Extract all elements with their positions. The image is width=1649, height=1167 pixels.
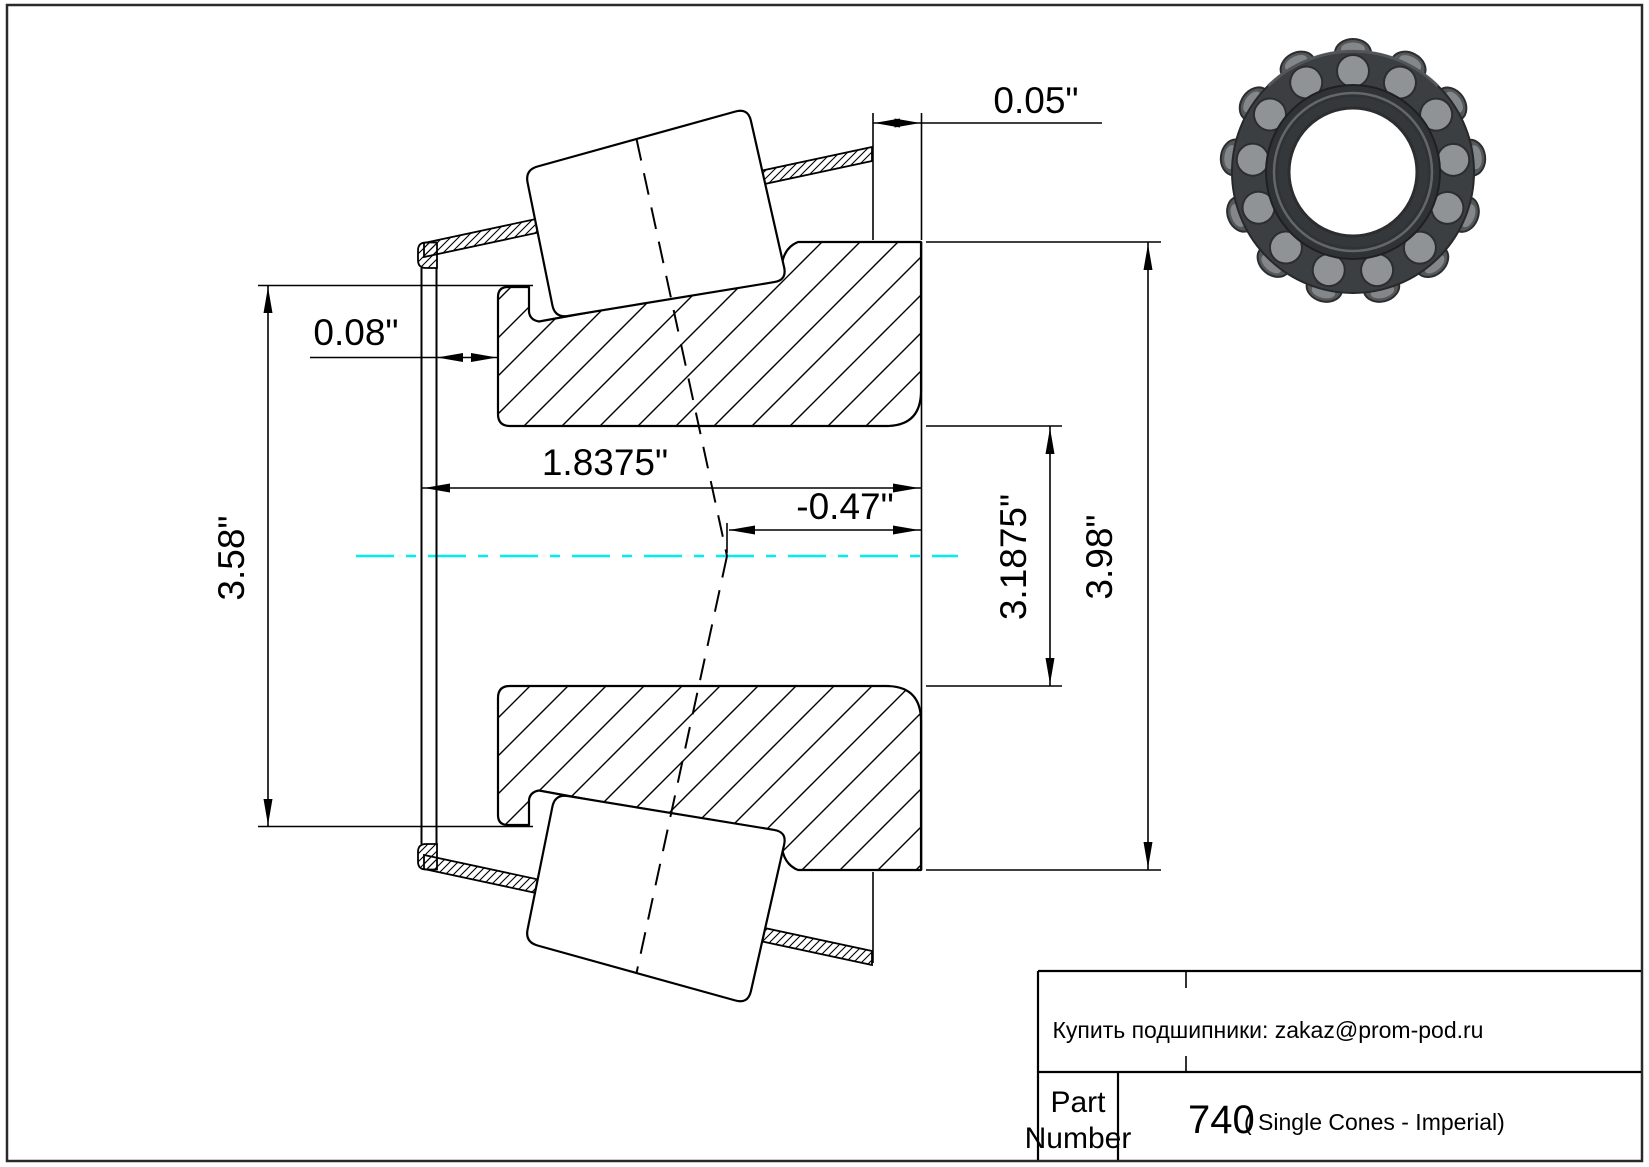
part-number-note: ( Single Cones - Imperial) bbox=[1244, 1109, 1505, 1135]
part-label-line1: Part bbox=[1050, 1086, 1106, 1119]
dim-cone-width-label: 1.8375" bbox=[542, 442, 668, 483]
part-label-line2: Number bbox=[1025, 1122, 1132, 1155]
cage-lip-lower bbox=[418, 844, 437, 870]
ext-cage-od bbox=[926, 242, 1161, 870]
dim-front-gap-label: 0.08" bbox=[313, 312, 398, 353]
dim-effective-center-label: -0.47" bbox=[796, 486, 893, 527]
dim-front-flange-label: 3.58" bbox=[211, 515, 252, 600]
drawing-sheet: 0.05" 0.08" 1.8375" -0.47" 3.1875" 3.98"… bbox=[0, 0, 1649, 1167]
dim-back-gap-label: 0.05" bbox=[993, 80, 1078, 121]
title-block: Купить подшипники: zakaz@prom-pod.ru Par… bbox=[1025, 971, 1641, 1160]
contact-text: Купить подшипники: zakaz@prom-pod.ru bbox=[1053, 1017, 1484, 1043]
roller-upper bbox=[527, 111, 784, 316]
cage-lip-upper bbox=[418, 243, 437, 269]
bearing-photo bbox=[1219, 39, 1487, 305]
bearing-bore bbox=[1289, 108, 1417, 236]
dim-bore-label: 3.1875" bbox=[993, 494, 1034, 620]
ext-front-flange bbox=[258, 286, 533, 827]
dim-cage-od-label: 3.98" bbox=[1079, 514, 1120, 599]
cone-cross-section bbox=[498, 242, 921, 870]
roller-lower bbox=[527, 796, 784, 1001]
